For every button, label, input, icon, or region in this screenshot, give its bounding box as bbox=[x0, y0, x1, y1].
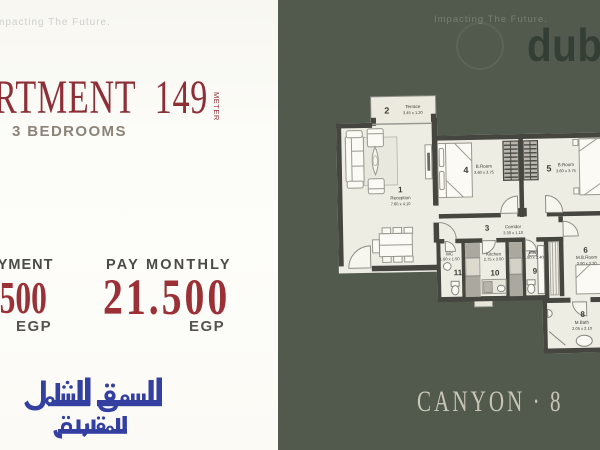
svg-text:4: 4 bbox=[463, 165, 468, 175]
svg-text:3.45 x 1.20: 3.45 x 1.20 bbox=[403, 110, 424, 115]
svg-text:1.60 x 1.50: 1.60 x 1.50 bbox=[440, 256, 461, 261]
svg-text:Corridor: Corridor bbox=[505, 224, 522, 229]
svg-text:3.60 x 3.75: 3.60 x 3.75 bbox=[556, 168, 577, 173]
svg-text:3.60 x 3.75: 3.60 x 3.75 bbox=[474, 169, 495, 174]
svg-text:1.50 x 2.40: 1.50 x 2.40 bbox=[524, 255, 545, 260]
svg-text:1: 1 bbox=[398, 185, 403, 194]
svg-text:Terrace: Terrace bbox=[405, 104, 421, 109]
svg-text:8: 8 bbox=[580, 310, 585, 319]
svg-text:9: 9 bbox=[533, 267, 538, 276]
svg-text:3.90 x 3.30: 3.90 x 3.30 bbox=[577, 261, 598, 266]
svg-text:10: 10 bbox=[490, 268, 500, 277]
svg-text:3: 3 bbox=[485, 224, 490, 233]
svg-text:2.75 x 3.00: 2.75 x 3.00 bbox=[484, 256, 505, 261]
svg-text:2.05 x 2.10: 2.05 x 2.10 bbox=[572, 326, 593, 331]
svg-text:M.Bath: M.Bath bbox=[575, 320, 590, 325]
svg-text:M.B.Room: M.B.Room bbox=[576, 255, 598, 260]
svg-text:Reception: Reception bbox=[390, 195, 411, 200]
svg-text:2: 2 bbox=[384, 106, 389, 116]
svg-text:11: 11 bbox=[454, 268, 463, 277]
svg-text:B.Room: B.Room bbox=[476, 164, 493, 169]
svg-text:7.60 x 4.10: 7.60 x 4.10 bbox=[391, 201, 412, 206]
svg-text:6: 6 bbox=[583, 246, 588, 255]
svg-text:3.30 x 1.10: 3.30 x 1.10 bbox=[503, 230, 524, 235]
svg-text:B.Room: B.Room bbox=[558, 162, 575, 167]
svg-text:5: 5 bbox=[546, 163, 551, 173]
